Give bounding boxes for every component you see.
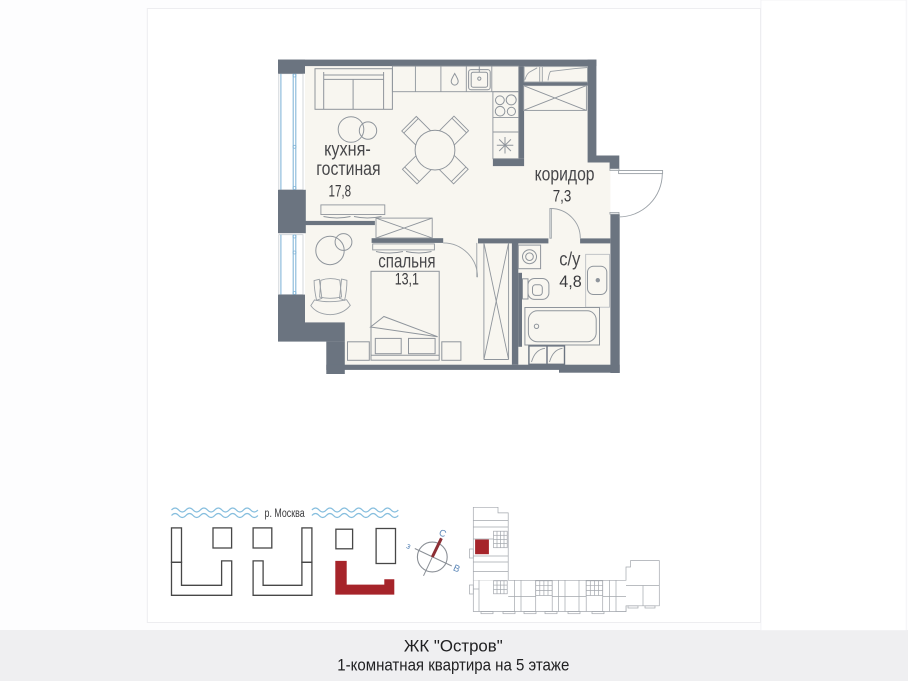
svg-text:с/у: с/у <box>559 250 581 271</box>
svg-text:4,8: 4,8 <box>559 272 581 291</box>
svg-text:коридор: коридор <box>535 164 595 185</box>
svg-text:13,1: 13,1 <box>395 270 419 289</box>
svg-text:кухня-: кухня- <box>324 140 371 161</box>
svg-text:р. Москва: р. Москва <box>265 508 306 520</box>
svg-text:7,3: 7,3 <box>553 186 572 205</box>
svg-text:1-комнатная квартира на 5 этаж: 1-комнатная квартира на 5 этаже <box>337 655 569 674</box>
svg-text:гостиная: гостиная <box>316 159 380 180</box>
svg-text:17,8: 17,8 <box>329 182 352 201</box>
svg-text:ЖК "Остров": ЖК "Остров" <box>404 637 503 656</box>
